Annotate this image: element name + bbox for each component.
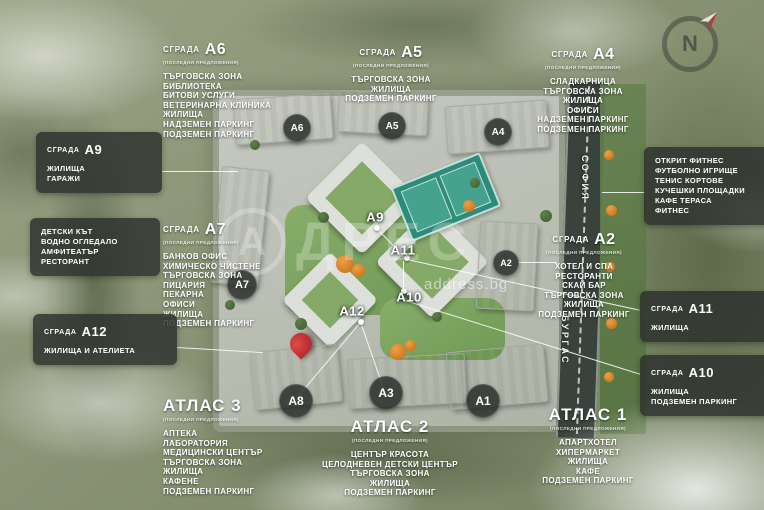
callout-item: ТЪРГОВСКА ЗОНА xyxy=(300,469,480,479)
callout-items: ТЪРГОВСКА ЗОНАБИБЛИОТЕКАБИТОВИ УСЛУГИВЕТ… xyxy=(163,72,291,139)
callout-title: СГРАДАA7 xyxy=(163,221,291,239)
connector-dot xyxy=(358,319,364,325)
callout-item: КАФЕ xyxy=(518,467,658,477)
callout-building-a5: СГРАДАA5 (ПОСЛЕДНИ ПРЕДЛОЖЕНИЯ) ТЪРГОВСК… xyxy=(321,44,461,104)
callout-item: ТЪРГОВСКА ЗОНА xyxy=(321,75,461,85)
callout-item: ВЕТЕРИНАРНА КЛИНИКА xyxy=(163,101,291,111)
tree xyxy=(432,312,442,322)
callout-item: БИБЛИОТЕКА xyxy=(163,82,291,92)
callout-item: ЦЕНТЪР КРАСОТА xyxy=(300,450,480,460)
autumn-tree xyxy=(606,318,617,329)
callout-title: СГРАДАA9 xyxy=(47,141,151,159)
autumn-tree xyxy=(405,340,416,351)
callout-items: ЖИЛИЩА И АТЕЛИЕТА xyxy=(44,346,166,356)
callout-item: ЖИЛИЩА xyxy=(514,300,654,310)
callout-title: СГРАДАA4 xyxy=(513,46,653,64)
autumn-tree xyxy=(604,372,614,382)
callout-item: КУЧЕШКИ ПЛОЩАДКИ xyxy=(655,186,764,196)
autumn-tree xyxy=(352,264,365,277)
callout-item: ЖИЛИЩА xyxy=(651,387,764,397)
callout-item: НАДЗЕМЕН ПАРКИНГ xyxy=(163,120,291,130)
callout-item: СЛАДКАРНИЦА xyxy=(513,77,653,87)
callout-item: ПОДЗЕМЕН ПАРКИНГ xyxy=(518,476,658,486)
callout-item: ОФИСИ xyxy=(163,300,291,310)
callout-item: ПИЦАРИЯ xyxy=(163,281,291,291)
callout-item: ТЪРГОВСКА ЗОНА xyxy=(513,87,653,97)
callout-item: ПОДЗЕМЕН ПАРКИНГ xyxy=(321,94,461,104)
callout-item: АПТЕКА xyxy=(163,429,303,439)
callout-item: РЕСТОРАНТ xyxy=(41,257,149,267)
callout-building-a10: СГРАДАA10 ЖИЛИЩАПОДЗЕМЕН ПАРКИНГ xyxy=(640,355,764,416)
building-badge-a11[interactable]: A11 xyxy=(391,243,416,258)
connector-dot xyxy=(374,225,380,231)
building-badge-a5[interactable]: A5 xyxy=(378,112,406,140)
autumn-tree xyxy=(606,205,617,216)
callout-item: ЖИЛИЩА xyxy=(518,457,658,467)
tree xyxy=(250,140,260,150)
callout-atlas-1: АТЛАС 1 (ПОСЛЕДНИ ПРЕДЛОЖЕНИЯ) АПАРТХОТЕ… xyxy=(518,405,658,486)
callout-item: АМФИТЕАТЪР xyxy=(41,247,149,257)
connector-line xyxy=(162,171,238,172)
callout-items: ЦЕНТЪР КРАСОТАЦЕЛОДНЕВЕН ДЕТСКИ ЦЕНТЪРТЪ… xyxy=(300,450,480,498)
callout-item: ФИТНЕС xyxy=(655,206,764,216)
callout-item: ПОДЗЕМЕН ПАРКИНГ xyxy=(163,130,291,140)
callout-item: НАДЗЕМЕН ПАРКИНГ xyxy=(513,115,653,125)
callout-subtitle: (ПОСЛЕДНИ ПРЕДЛОЖЕНИЯ) xyxy=(514,250,654,255)
callout-subtitle: (ПОСЛЕДНИ ПРЕДЛОЖЕНИЯ) xyxy=(321,63,461,68)
callout-item: ТЪРГОВСКА ЗОНА xyxy=(163,72,291,82)
callout-building-a7: СГРАДАA7 (ПОСЛЕДНИ ПРЕДЛОЖЕНИЯ) БАНКОВ О… xyxy=(163,221,291,329)
callout-subtitle: (ПОСЛЕДНИ ПРЕДЛОЖЕНИЯ) xyxy=(518,426,658,431)
callout-item: ФУТБОЛНО ИГРИЩЕ xyxy=(655,166,764,176)
callout-subtitle: (ПОСЛЕДНИ ПРЕДЛОЖЕНИЯ) xyxy=(513,65,653,70)
callout-item: ЦЕЛОДНЕВЕН ДЕТСКИ ЦЕНТЪР xyxy=(300,460,480,470)
callout-item: ХОТЕЛ И СПА xyxy=(514,262,654,272)
callout-sports-area: ОТКРИТ ФИТНЕСФУТБОЛНО ИГРИЩЕТЕНИС КОРТОВ… xyxy=(644,147,764,225)
callout-title: СГРАДАA12 xyxy=(44,323,166,341)
road-label-sofia: СОФИЯ xyxy=(580,155,590,201)
callout-items: ОТКРИТ ФИТНЕСФУТБОЛНО ИГРИЩЕТЕНИС КОРТОВ… xyxy=(655,156,764,216)
callout-title: СГРАДАA2 xyxy=(514,231,654,249)
callout-items: СЛАДКАРНИЦАТЪРГОВСКА ЗОНАЖИЛИЩАОФИСИНАДЗ… xyxy=(513,77,653,135)
callout-item: ЖИЛИЩА xyxy=(651,323,764,333)
callout-item: БАНКОВ ОФИС xyxy=(163,252,291,262)
callout-title: АТЛАС 1 xyxy=(518,405,658,425)
callout-title: СГРАДАA11 xyxy=(651,300,764,318)
callout-item: ТЪРГОВСКА ЗОНА xyxy=(514,291,654,301)
callout-building-a2: СГРАДАA2 (ПОСЛЕДНИ ПРЕДЛОЖЕНИЯ) ХОТЕЛ И … xyxy=(514,231,654,320)
callout-items: АПТЕКАЛАБОРАТОРИЯМЕДИЦИНСКИ ЦЕНТЪРТЪРГОВ… xyxy=(163,429,303,496)
callout-subtitle: (ПОСЛЕДНИ ПРЕДЛОЖЕНИЯ) xyxy=(163,60,291,65)
building-badge-a3[interactable]: A3 xyxy=(369,376,403,410)
callout-item: БИТОВИ УСЛУГИ xyxy=(163,91,291,101)
callout-item: ЛАБОРАТОРИЯ xyxy=(163,439,303,449)
callout-title: СГРАДАA6 xyxy=(163,41,291,59)
callout-item: ЖИЛИЩА xyxy=(163,110,291,120)
autumn-tree xyxy=(463,200,475,212)
callout-item: ХИПЕРМАРКЕТ xyxy=(518,448,658,458)
callout-title: АТЛАС 3 xyxy=(163,396,303,416)
callout-item: АПАРТХОТЕЛ xyxy=(518,438,658,448)
callout-item: ЖИЛИЩА xyxy=(163,310,291,320)
callout-building-a6: СГРАДАA6 (ПОСЛЕДНИ ПРЕДЛОЖЕНИЯ) ТЪРГОВСК… xyxy=(163,41,291,139)
callout-subtitle: (ПОСЛЕДНИ ПРЕДЛОЖЕНИЯ) xyxy=(163,240,291,245)
callout-item: ЖИЛИЩА xyxy=(47,164,151,174)
building-badge-a10[interactable]: A10 xyxy=(396,290,421,305)
building-badge-a4[interactable]: A4 xyxy=(484,118,512,146)
building-badge-a1[interactable]: A1 xyxy=(466,384,500,418)
callout-building-a11: СГРАДАA11 ЖИЛИЩА xyxy=(640,291,764,342)
tree xyxy=(540,210,552,222)
callout-items: ДЕТСКИ КЪТВОДНО ОГЛЕДАЛОАМФИТЕАТЪРРЕСТОР… xyxy=(41,227,149,267)
callout-item: РЕСТОРАНТИ xyxy=(514,272,654,282)
callout-item: ОТКРИТ ФИТНЕС xyxy=(655,156,764,166)
compass-n-label: N xyxy=(682,31,698,57)
callout-item: ПОДЗЕМЕН ПАРКИНГ xyxy=(514,310,654,320)
callout-item: ПЕКАРНА xyxy=(163,290,291,300)
callout-subtitle: (ПОСЛЕДНИ ПРЕДЛОЖЕНИЯ) xyxy=(300,438,480,443)
callout-item: ПОДЗЕМЕН ПАРКИНГ xyxy=(651,397,764,407)
callout-building-a12: СГРАДАA12 ЖИЛИЩА И АТЕЛИЕТА xyxy=(33,314,177,365)
callout-building-a4: СГРАДАA4 (ПОСЛЕДНИ ПРЕДЛОЖЕНИЯ) СЛАДКАРН… xyxy=(513,46,653,135)
callout-item: ПОДЗЕМЕН ПАРКИНГ xyxy=(163,319,291,329)
callout-item: ДЕТСКИ КЪТ xyxy=(41,227,149,237)
callout-item: ОФИСИ xyxy=(513,106,653,116)
callout-item: МЕДИЦИНСКИ ЦЕНТЪР xyxy=(163,448,303,458)
callout-item: ГАРАЖИ xyxy=(47,174,151,184)
tree xyxy=(318,212,329,223)
callout-item: СКАЙ БАР xyxy=(514,281,654,291)
callout-items: ХОТЕЛ И СПАРЕСТОРАНТИСКАЙ БАРТЪРГОВСКА З… xyxy=(514,262,654,320)
connector-line xyxy=(602,192,644,193)
callout-items: ТЪРГОВСКА ЗОНАЖИЛИЩАПОДЗЕМЕН ПАРКИНГ xyxy=(321,75,461,104)
building-badge-a9[interactable]: A9 xyxy=(366,210,384,225)
callout-atlas-2: АТЛАС 2 (ПОСЛЕДНИ ПРЕДЛОЖЕНИЯ) ЦЕНТЪР КР… xyxy=(300,417,480,498)
callout-item: ВОДНО ОГЛЕДАЛО xyxy=(41,237,149,247)
callout-item: КАФЕ ТЕРАСА xyxy=(655,196,764,206)
callout-title: АТЛАС 2 xyxy=(300,417,480,437)
autumn-tree xyxy=(604,150,614,160)
callout-items: ЖИЛИЩАПОДЗЕМЕН ПАРКИНГ xyxy=(651,387,764,407)
callout-item: ЖИЛИЩА xyxy=(321,85,461,95)
callout-subtitle: (ПОСЛЕДНИ ПРЕДЛОЖЕНИЯ) xyxy=(163,417,303,422)
callout-items: ЖИЛИЩА xyxy=(651,323,764,333)
callout-item: ХИМИЧЕСКО ЧИСТЕНЕ xyxy=(163,262,291,272)
road-label-burgas: БУРГАС xyxy=(560,315,570,365)
tree xyxy=(295,318,307,330)
autumn-tree xyxy=(390,344,406,360)
callout-title: СГРАДАA10 xyxy=(651,364,764,382)
callout-item: ЖИЛИЩА xyxy=(300,479,480,489)
compass-north-icon: N xyxy=(662,16,718,72)
connector-line xyxy=(403,261,404,288)
callout-item: ТЪРГОВСКА ЗОНА xyxy=(163,458,303,468)
callout-item: ТЕНИС КОРТОВЕ xyxy=(655,176,764,186)
callout-item: ПОДЗЕМЕН ПАРКИНГ xyxy=(163,487,303,497)
callout-building-a9: СГРАДАA9 ЖИЛИЩАГАРАЖИ xyxy=(36,132,162,193)
callout-item: ЖИЛИЩА xyxy=(163,467,303,477)
callout-item: ПОДЗЕМЕН ПАРКИНГ xyxy=(300,488,480,498)
site-plan-map: А ДРЕС address.bg СОФИЯ БУРГАС A6 A5 A4 … xyxy=(0,0,764,510)
callout-item: ЖИЛИЩА И АТЕЛИЕТА xyxy=(44,346,166,356)
callout-atlas-3: АТЛАС 3 (ПОСЛЕДНИ ПРЕДЛОЖЕНИЯ) АПТЕКАЛАБ… xyxy=(163,396,303,496)
callout-items: БАНКОВ ОФИСХИМИЧЕСКО ЧИСТЕНЕТЪРГОВСКА ЗО… xyxy=(163,252,291,329)
tree xyxy=(470,178,480,188)
callout-kids-area: ДЕТСКИ КЪТВОДНО ОГЛЕДАЛОАМФИТЕАТЪРРЕСТОР… xyxy=(30,218,160,276)
callout-item: ТЪРГОВСКА ЗОНА xyxy=(163,271,291,281)
callout-item: ЖИЛИЩА xyxy=(513,96,653,106)
callout-items: ЖИЛИЩАГАРАЖИ xyxy=(47,164,151,184)
callout-items: АПАРТХОТЕЛХИПЕРМАРКЕТЖИЛИЩАКАФЕПОДЗЕМЕН … xyxy=(518,438,658,486)
building-badge-a12[interactable]: A12 xyxy=(339,304,364,319)
callout-title: СГРАДАA5 xyxy=(321,44,461,62)
callout-item: ПОДЗЕМЕН ПАРКИНГ xyxy=(513,125,653,135)
callout-item: КАФЕНЕ xyxy=(163,477,303,487)
